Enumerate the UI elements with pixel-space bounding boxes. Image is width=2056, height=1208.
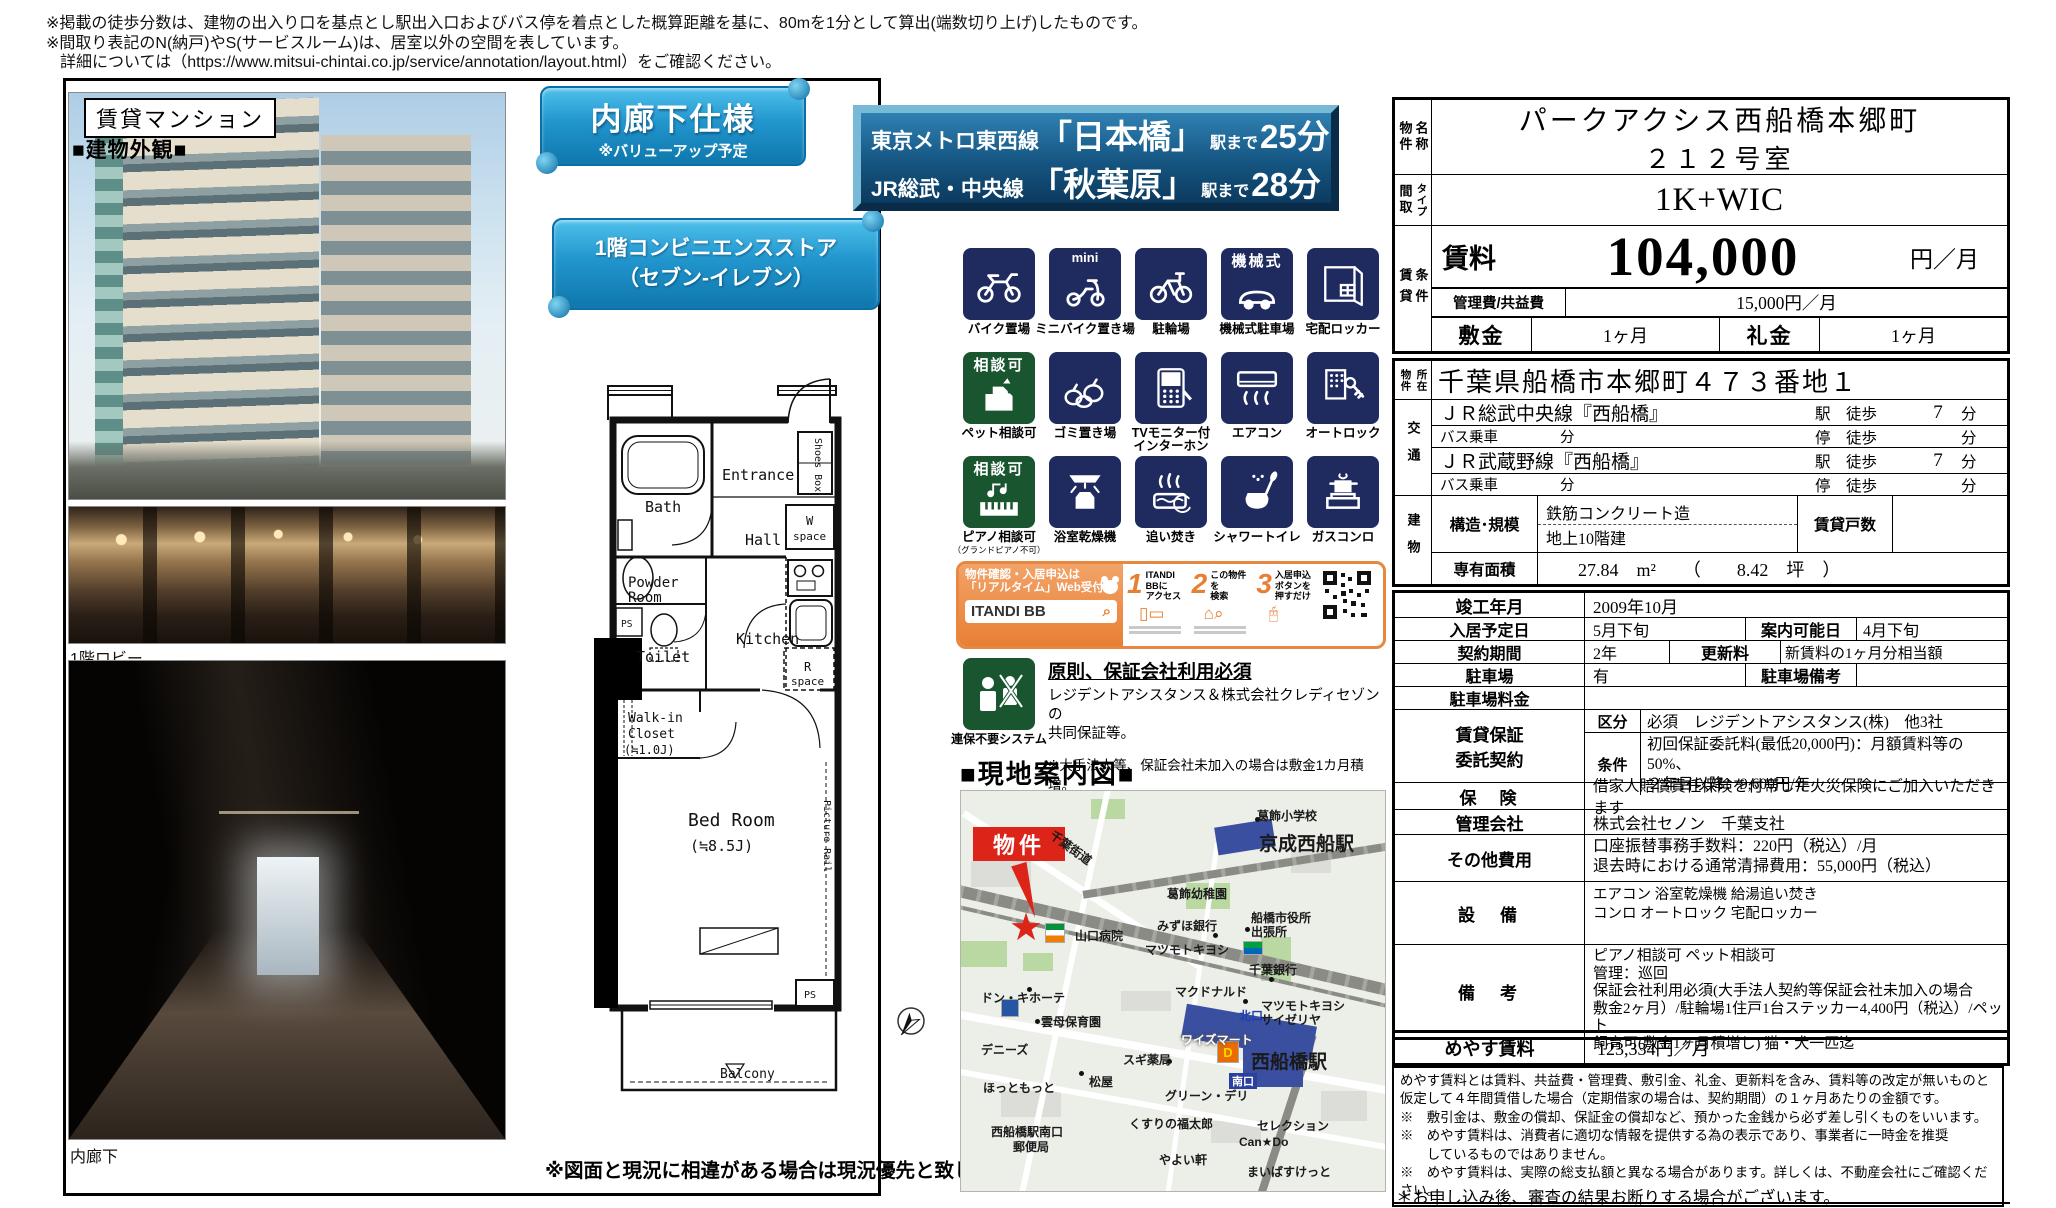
other-fees-row: その他費用 口座振替事務手数料：220円（税込）/月 退去時における通常清掃費用… — [1395, 834, 2007, 881]
amenity-pet-ok: 相談可 ペット相談可 — [956, 352, 1042, 456]
guarantee-contract-row: 賃貸保証 委託契約 区分 必須 レジデントアシスタンス(株) 他3社 条件 初回… — [1395, 709, 2007, 782]
structure-line: 鉄筋コンクリート造 — [1538, 500, 1797, 525]
guarantor-body: レジデントアシスタンス＆株式会社クレディセゾンの — [1048, 687, 1386, 725]
management-company-row: 管理会社 株式会社セノン 千葉支社 — [1395, 809, 2007, 834]
map-label: サイゼリヤ — [1261, 1011, 1321, 1028]
amenity-label: ピアノ相談可 — [962, 531, 1036, 544]
parking-note-value — [1857, 664, 2007, 686]
map-label: セレクション — [1257, 1117, 1329, 1134]
guide-rent-label: めやす賃料 — [1395, 1033, 1585, 1063]
amenity-aircon: エアコン — [1214, 352, 1300, 456]
qr-code — [1321, 564, 1383, 646]
transit-line: ＪＲ総武中央線『西船橋』 — [1432, 399, 1815, 426]
feature-ribbon-convenience-store: 1階コンビニエンスストア （セブン-イレブン） — [552, 218, 880, 310]
seven-eleven-icon — [1045, 923, 1065, 943]
bus-label: バス乗車 — [1432, 426, 1560, 447]
rent-conditions-row: 賃貸 条件 賃料 104,000 円／月 管理費/共益費 15,000円／月 敷… — [1395, 225, 2007, 351]
parking-row: 駐車場 有 駐車場備考 — [1395, 663, 2007, 686]
room-label-powder-room: Room — [628, 590, 662, 606]
itandi-header-panel: 物件確認・入居申込は 「リアルタイム」Web受付 ITANDI BB ⌕ — [959, 564, 1123, 646]
fine-print — [1194, 631, 1246, 634]
transit-line: ＪＲ武蔵野線『西船橋』 — [1432, 447, 1815, 474]
access-row: JR総武・中央線 「秋葉原」 駅まで 28分 — [871, 158, 1321, 206]
map-park — [1023, 953, 1053, 971]
shower-toilet-icon — [1221, 456, 1293, 528]
map-label: デニーズ — [981, 1041, 1028, 1058]
room-label-w-space: space — [793, 530, 826, 543]
property-type-badge: 賃貸マンション — [84, 98, 276, 138]
other-fees-label: その他費用 — [1395, 835, 1585, 881]
photo-lobby — [68, 506, 506, 644]
station-name: 「日本橋」 — [1039, 110, 1204, 158]
guarantee-kubun-row: 区分 必須 レジデントアシスタンス(株) 他3社 — [1585, 710, 2007, 732]
disclaimer-line: ※掲載の徒歩分数は、建物の出入り口を基点とし駅出入口およびバス停を着点とした概算… — [46, 14, 1148, 34]
completion-label: 竣工年月 — [1395, 593, 1585, 617]
autolock-icon — [1307, 352, 1379, 424]
row-header-text: 名称 — [1414, 121, 1429, 153]
area-label: 専有面積 — [1432, 553, 1538, 584]
motorbike-icon — [963, 248, 1035, 320]
ribbon-line: 1階コンビニエンスストア — [554, 234, 878, 264]
equipment-row: 設 備 エアコン 浴室乾燥機 給湯追い焚き コンロ オートロック 宅配ロッカー — [1395, 881, 2007, 944]
parking-note-label: 駐車場備考 — [1745, 664, 1857, 686]
map-block — [1121, 991, 1171, 1011]
insurance-row: 保 険 借家人賠償責任保険を付帯した火災保険にご加入いただきます — [1395, 782, 2007, 809]
row-header-text: 建物 — [1406, 513, 1421, 567]
property-name-row: 物件 名称 パークアクシス西船橋本郷町 ２１２号室 — [1395, 100, 2007, 174]
itandi-web-application-banner: 物件確認・入居申込は 「リアルタイム」Web受付 ITANDI BB ⌕ 1 I… — [956, 561, 1386, 649]
station-name: 「秋葉原」 — [1030, 158, 1195, 206]
completion-value: 2009年10月 — [1585, 593, 2007, 617]
guide-note-line: ※ めやす賃料は、消費者に適切な情報を提供する為の表示であり、事業者に一時金を推… — [1400, 1127, 1996, 1145]
room-label-shoes-box: Shoes Box — [812, 438, 823, 492]
guarantee-label: 賃貸保証 委託契約 — [1395, 710, 1585, 782]
map-label: みずほ銀行 — [1157, 917, 1217, 934]
row-header-text: 所在 — [1414, 369, 1429, 392]
amenity-piano-ok: 相談可 ピアノ相談可 （グランドピアノ不可） — [956, 456, 1042, 560]
stop-walk-label: 停 徒歩 — [1815, 426, 1915, 448]
amenity-tv-intercom: TVモニター付インターホン — [1128, 352, 1214, 456]
transit-unit: 分 — [1961, 426, 2007, 448]
deposit-label: 敷金 — [1432, 318, 1532, 351]
map-label: ほっともっと — [983, 1079, 1055, 1096]
transit-unit: 分 — [1961, 402, 2007, 424]
map-label: Can★Do — [1239, 1135, 1288, 1149]
room-label-ps: PS — [621, 619, 633, 630]
room-label-walkin2: Closet — [628, 727, 675, 742]
property-star-icon: ★ — [1009, 909, 1043, 947]
bath-dryer-icon — [1049, 456, 1121, 528]
floor-plan: Entrance Shoes Box Bath Hall W space Pow… — [540, 376, 890, 1176]
amenity-shower-toilet: シャワートイレ — [1214, 456, 1300, 560]
equipment-line: エアコン 浴室乾燥機 給湯追い焚き — [1593, 886, 2007, 905]
remarks-line: 管理：巡回 — [1593, 966, 2007, 984]
fine-print — [1129, 626, 1181, 629]
rent-row: 賃料 104,000 円／月 — [1432, 226, 2007, 287]
amenity-label: 浴室乾燥機 — [1054, 531, 1117, 544]
room-label-walkin1: Walk-in — [628, 711, 683, 726]
amenity-mechanical-parking: 機械式 機械式駐車場 — [1214, 248, 1300, 352]
amenity-label: バイク置場 — [968, 323, 1030, 336]
insurance-value: 借家人賠償責任保険を付帯した火災保険にご加入いただきます — [1585, 783, 2007, 809]
photo-corridor — [68, 660, 506, 1140]
rail-line-name: 東京メトロ東西線 — [871, 125, 1039, 155]
row-header: 建物 — [1395, 496, 1432, 584]
guide-note-line: しているものではありません。 — [1400, 1146, 1996, 1164]
familymart-icon — [1243, 941, 1263, 955]
amenity-autolock: オートロック — [1300, 352, 1386, 456]
table-bottom-rule — [1392, 1202, 2010, 1204]
completion-row: 竣工年月 2009年10月 — [1395, 593, 2007, 617]
guide-note-line: 仮定して４年間賃借した場合（定期借家の場合は、契約期間）の１ヶ月あたりの金額です… — [1400, 1090, 1996, 1108]
structure-line: 地上10階建 — [1538, 525, 1797, 549]
garbage-area-icon — [1049, 352, 1121, 424]
row-header: 賃貸 条件 — [1395, 226, 1432, 351]
corridor-caption: 内廊下 — [70, 1143, 118, 1167]
transit-bus-row: バス乗車 分 停 徒歩 分 — [1432, 425, 2007, 447]
remarks-label: 備 考 — [1395, 945, 1585, 1037]
equipment-line: コンロ オートロック 宅配ロッカー — [1593, 905, 2007, 924]
access-row: 東京メトロ東西線 「日本橋」 駅まで 25分 — [871, 110, 1321, 158]
bus-minutes-unit: 分 — [1560, 426, 1815, 447]
remarks-line: ピアノ相談可 ペット相談可 — [1593, 948, 2007, 966]
map-label: 西船橋駅 — [1251, 1047, 1327, 1074]
building-rows: 建物 構造･規模 鉄筋コンクリート造 地上10階建 賃貸戸数 専有面積 27.8… — [1395, 495, 2007, 584]
guide-rent-value: 123,334円／月 — [1585, 1033, 2007, 1063]
amenity-label: オートロック — [1305, 427, 1380, 440]
transit-unit: 分 — [1961, 474, 2007, 496]
map-label: くすりの福太郎 — [1129, 1115, 1213, 1132]
map-label: まいばすけっと — [1247, 1163, 1331, 1180]
contract-row: 契約期間 2年 更新料 新賃料の1ヶ月分相当額 — [1395, 640, 2007, 663]
station-access-banner: 東京メトロ東西線 「日本橋」 駅まで 25分 JR総武・中央線 「秋葉原」 駅ま… — [853, 105, 1339, 211]
management-company-label: 管理会社 — [1395, 810, 1585, 834]
contract-value: 2年 — [1585, 641, 1669, 663]
map-label: 葛飾幼稚園 — [1167, 885, 1227, 902]
viewing-label: 案内可能日 — [1745, 618, 1857, 640]
guide-rent-row: めやす賃料 123,334円／月 — [1392, 1030, 2010, 1066]
remarks-row: 備 考 ピアノ相談可 ペット相談可 管理：巡回 保証会社利用必須(大手法人契約等… — [1395, 944, 2007, 1037]
transit-walk-label: 駅 徒歩 — [1815, 402, 1915, 424]
guide-note-line: めやす賃料とは賃料、共益費・管理費、敷引金、礼金、更新料を含み、賃料等の改定が無… — [1400, 1072, 1996, 1090]
row-header-text: 交通 — [1406, 421, 1421, 475]
map-dot — [1245, 927, 1250, 932]
map-label: ワイズマート — [1181, 1031, 1253, 1048]
amenity-sublabel: （グランドピアノ不可） — [953, 544, 1046, 556]
row-header-text: タイプ — [1414, 183, 1429, 218]
row-header: 物件 名称 — [1395, 100, 1432, 174]
reheating-bath-icon — [1135, 456, 1207, 528]
piano-ok-icon: 相談可 — [963, 456, 1035, 528]
equipment-label: 設 備 — [1395, 882, 1585, 944]
compass-icon — [890, 1000, 932, 1042]
room-label-r-space: space — [791, 675, 824, 688]
movein-label: 入居予定日 — [1395, 618, 1585, 640]
other-fees-line: 口座振替事務手数料：220円（税込）/月 — [1593, 837, 2007, 857]
guarantor-body: 共同保証等。 — [1048, 725, 1386, 744]
rail-line-name: JR総武・中央線 — [871, 173, 1030, 203]
aircon-icon — [1221, 352, 1293, 424]
kubun-value: 必須 レジデントアシスタンス(株) 他3社 — [1641, 710, 2007, 732]
itandi-headline: 物件確認・入居申込は — [965, 569, 1117, 582]
amenity-label: ミニバイク置き場 — [1035, 323, 1135, 336]
room-label-picture-rail: Picture Rail — [821, 800, 832, 872]
mechanical-parking-icon: 機械式 — [1221, 248, 1293, 320]
amenity-delivery-locker: 宅配ロッカー — [1300, 248, 1386, 352]
access-minutes: 25分 — [1260, 110, 1330, 158]
itandi-logo-text: ITANDI BB — [971, 603, 1046, 620]
amenity-bath-dryer: 浴室乾燥機 — [1042, 456, 1128, 560]
remarks-line: 保証会社利用必須(大手法人契約等保証会社未加入の場合 — [1593, 983, 2007, 1001]
minibike-icon: mini — [1049, 248, 1121, 320]
area-value: 27.84 m² （ 8.42 坪 ） — [1538, 553, 2007, 584]
amenity-motorbike: バイク置場 — [956, 248, 1042, 352]
row-header-text: 間取 — [1398, 184, 1413, 216]
movein-row: 入居予定日 5月下旬 案内可能日 4月下旬 — [1395, 617, 2007, 640]
structure-label: 構造･規模 — [1432, 496, 1538, 552]
amenity-gas-stove: ガスコンロ — [1300, 456, 1386, 560]
spec-section-details: 竣工年月 2009年10月 入居予定日 5月下旬 案内可能日 4月下旬 契約期間… — [1392, 590, 2010, 1040]
layout-type: 1K+WIC — [1432, 175, 2007, 225]
parking-value: 有 — [1585, 664, 1745, 686]
room-label-hall: Hall — [745, 531, 781, 549]
step-number: 3 — [1256, 570, 1272, 598]
map-dot — [1079, 1071, 1084, 1076]
viewing-value: 4月下旬 — [1857, 618, 2007, 640]
structure-value: 鉄筋コンクリート造 地上10階建 — [1538, 496, 1797, 552]
room-label-walkin-size: (≒1.0J) — [624, 743, 675, 757]
bear-icon — [1102, 580, 1118, 594]
amenity-label: シャワートイレ — [1213, 531, 1301, 544]
row-header-text: 物件 — [1398, 369, 1413, 392]
room-label-toilet: Toilet — [636, 648, 690, 666]
itandi-steps: 1 ITANDI BBに アクセス ▯▭ 2 この物件を 検索 ⌂⌕ 3 入居申… — [1123, 564, 1321, 646]
room-label-w: W — [806, 514, 814, 528]
map-label: グリーン・デリ — [1165, 1087, 1248, 1104]
step-number: 1 — [1127, 570, 1143, 598]
management-company-value: 株式会社セノン 千葉支社 — [1585, 810, 2007, 834]
renewal-label: 更新料 — [1669, 641, 1781, 663]
itandi-step-3: 3 入居申込ボタンを 押すだけ 🖰 — [1254, 568, 1319, 642]
row-header-text: 賃貸 — [1398, 268, 1413, 310]
itandi-step-2: 2 この物件を 検索 ⌂⌕ — [1190, 568, 1255, 642]
tv-intercom-icon — [1135, 352, 1207, 424]
property-room-number: ２１２号室 — [1644, 139, 1794, 176]
house-search-icon: ⌂⌕ — [1204, 604, 1253, 624]
amenity-label: ゴミ置き場 — [1054, 427, 1117, 440]
keymoney-label: 礼金 — [1720, 318, 1820, 351]
parking-label: 駐車場 — [1395, 664, 1585, 686]
plan-priority-note: ※図面と現況に相違がある場合は現況優先と致します。 — [545, 1154, 1030, 1183]
guarantee-label-line: 賃貸保証 — [1456, 721, 1524, 746]
guarantor-title: 原則、保証会社利用必須 — [1048, 658, 1386, 684]
map-label: ドン・キホーテ — [981, 989, 1065, 1006]
management-fee-value: 15,000円／月 — [1566, 289, 2007, 316]
itandi-logo: ITANDI BB ⌕ — [965, 600, 1117, 623]
foreground-buildings — [69, 441, 505, 499]
mini-badge: mini — [1049, 250, 1121, 265]
row-header-text: 物件 — [1398, 121, 1413, 153]
amenity-label: 駐輪場 — [1152, 323, 1190, 336]
map-label: マクドナルド — [1175, 983, 1247, 1000]
disclaimer-notes: ※掲載の徒歩分数は、建物の出入り口を基点とし駅出入口およびバス停を着点とした概算… — [46, 14, 1148, 73]
rent-label: 賃料 — [1432, 237, 1496, 276]
rent-amount: 104,000 — [1496, 225, 1910, 288]
location-map: D 物件 ★ 葛飾小学校 京成西船駅 千葉街道 葛飾幼稚園 みずほ銀行 船橋市役… — [960, 790, 1386, 1192]
access-minutes: 28分 — [1251, 158, 1321, 206]
map-label: 京成西船駅 — [1259, 829, 1354, 856]
map-heading: ■現地案内図■ — [960, 754, 1135, 791]
structure-row: 構造･規模 鉄筋コンクリート造 地上10階建 賃貸戸数 — [1432, 496, 2007, 552]
map-label: スギ薬局 — [1123, 1051, 1171, 1068]
screening-note: ＊お申し込み後、審査の結果お断りする場合がございます。 — [1396, 1184, 1840, 1208]
map-label: 雲母保育園 — [1041, 1013, 1101, 1030]
row-header-text: 条件 — [1414, 268, 1429, 310]
transit-row: ＪＲ総武中央線『西船橋』 駅 徒歩 7 分 — [1432, 400, 2007, 425]
insurance-label: 保 険 — [1395, 783, 1585, 809]
fine-print — [1194, 626, 1246, 629]
management-fee-row: 管理費/共益費 15,000円／月 — [1432, 287, 2007, 316]
gas-stove-icon — [1307, 456, 1379, 528]
phone-laptop-icon: ▯▭ — [1139, 604, 1188, 624]
management-fee-label: 管理費/共益費 — [1432, 289, 1566, 316]
room-label-entrance: Entrance — [722, 466, 794, 484]
disclaimer-line: 詳細については（https://www.mitsui-chintai.co.jp… — [46, 53, 1148, 73]
no-guarantor-icon — [963, 658, 1035, 730]
amenity-label: ペット相談可 — [961, 427, 1036, 440]
amenity-label: ガスコンロ — [1312, 531, 1375, 544]
amenity-label: エアコン — [1232, 427, 1282, 440]
row-header: 物件 所在 — [1395, 361, 1432, 399]
map-label: やよい軒 — [1159, 1151, 1207, 1168]
itandi-headline: 「リアルタイム」Web受付 — [965, 582, 1117, 595]
parking-fee-label: 駐車場料金 — [1395, 687, 1585, 709]
room-label-bedroom-size: (≒8.5J) — [690, 837, 753, 855]
address: 千葉県船橋市本郷町４７３番地１ — [1432, 361, 2007, 399]
map-label: 北口 — [1239, 1007, 1263, 1024]
map-label: 郵便局 — [1013, 1138, 1049, 1155]
lobby-columns — [69, 507, 505, 643]
map-label: 松屋 — [1089, 1073, 1113, 1090]
kubun-label: 区分 — [1585, 710, 1641, 732]
transit-unit: 分 — [1961, 450, 2007, 472]
row-header: 間取 タイプ — [1395, 175, 1432, 225]
area-row: 専有面積 27.84 m² （ 8.42 坪 ） — [1432, 552, 2007, 584]
amenity-label: TVモニター付インターホン — [1132, 427, 1210, 453]
consult-badge: 相談可 — [963, 458, 1035, 479]
map-label: 山口病院 — [1075, 927, 1123, 944]
renewal-value: 新賃料の1ヶ月分相当額 — [1781, 641, 2007, 663]
delivery-locker-icon — [1307, 248, 1379, 320]
no-guarantor-label: 連保不要システム — [951, 733, 1047, 746]
mechanical-badge: 機械式 — [1221, 250, 1293, 271]
disclaimer-line: ※間取り表記のN(納戸)やS(サービスルーム)は、居室以外の空間を表しています。 — [46, 34, 1148, 54]
transit-walk-label: 駅 徒歩 — [1815, 450, 1915, 472]
transit-row: ＪＲ武蔵野線『西船橋』 駅 徒歩 7 分 — [1432, 447, 2007, 473]
room-label-kitchen: Kitchen — [736, 630, 799, 648]
transit-minutes: 7 — [1915, 402, 1961, 424]
transit-minutes: 7 — [1915, 450, 1961, 472]
spec-section-top: 物件 名称 パークアクシス西船橋本郷町 ２１２号室 間取 タイプ 1K+WIC … — [1392, 97, 2010, 354]
room-label-r: R — [804, 660, 812, 674]
consult-badge: 相談可 — [963, 354, 1035, 375]
units-label: 賃貸戸数 — [1797, 496, 1893, 552]
step-number: 2 — [1192, 570, 1208, 598]
room-label-powder: Powder — [628, 575, 679, 591]
map-label: 千葉銀行 — [1249, 961, 1297, 978]
contract-label: 契約期間 — [1395, 641, 1585, 663]
amenity-minibike: mini ミニバイク置き場 — [1042, 248, 1128, 352]
deposit-value: 1ヶ月 — [1532, 318, 1720, 351]
amenity-garbage-area: ゴミ置き場 — [1042, 352, 1128, 456]
ribbon-title: 内廊下仕様 — [542, 94, 804, 139]
corridor-light-strip — [219, 811, 359, 814]
pet-ok-icon: 相談可 — [963, 352, 1035, 424]
access-to-label: 駅まで — [1210, 129, 1258, 153]
spec-section-location: 物件 所在 千葉県船橋市本郷町４７３番地１ 交通 ＪＲ総武中央線『西船橋』 駅 … — [1392, 358, 2010, 587]
rent-unit: 円／月 — [1910, 240, 2007, 274]
map-label: 出張所 — [1251, 923, 1287, 940]
fine-print — [1129, 631, 1181, 634]
property-name: パークアクシス西船橋本郷町 — [1519, 99, 1921, 139]
deposit-keymoney-row: 敷金 1ヶ月 礼金 1ヶ月 — [1432, 316, 2007, 351]
corridor-end-door — [257, 857, 319, 975]
parking-fee-row: 駐車場料金 — [1395, 686, 2007, 709]
bus-minutes-unit: 分 — [1560, 474, 1815, 495]
amenity-icon-grid: バイク置場 mini ミニバイク置き場 駐輪場 機械式 機械式駐車場 — [956, 248, 1388, 560]
map-dot — [1035, 1019, 1040, 1024]
bicycle-icon — [1135, 248, 1207, 320]
joken-line: 初回保証委託料(最低20,000円)：月額賃料等の50%、 — [1647, 735, 2007, 775]
stop-walk-label: 停 徒歩 — [1815, 474, 1915, 496]
feature-ribbon-inner-corridor: 内廊下仕様 ※バリューアップ予定 — [540, 86, 806, 166]
layout-row: 間取 タイプ 1K+WIC — [1395, 174, 2007, 225]
address-row: 物件 所在 千葉県船橋市本郷町４７３番地１ — [1395, 361, 2007, 399]
row-header: 交通 — [1395, 400, 1432, 495]
room-label-ps-bottom: PS — [804, 990, 816, 1001]
parking-fee-value — [1585, 687, 2007, 709]
ribbon-line: （セブン-イレブン） — [554, 264, 878, 294]
map-label: 葛飾小学校 — [1257, 807, 1317, 824]
amenity-bicycle: 駐輪場 — [1128, 248, 1214, 352]
transit-rows: 交通 ＪＲ総武中央線『西船橋』 駅 徒歩 7 分 バス乗車 分 停 徒歩 分 Ｊ… — [1395, 399, 2007, 495]
map-label: マツモトキヨシ — [1145, 941, 1229, 958]
room-label-balcony: Balcony — [720, 1067, 775, 1082]
amenity-reheating-bath: 追い焚き — [1128, 456, 1214, 560]
bus-label: バス乗車 — [1432, 474, 1560, 495]
amenity-label: 追い焚き — [1146, 531, 1196, 544]
guide-note-line: ※ 敷引金は、敷金の償却、保証金の償却など、預かった金銭から必ず差し引くものをい… — [1400, 1109, 1996, 1127]
itandi-step-1: 1 ITANDI BBに アクセス ▯▭ — [1125, 568, 1190, 642]
movein-value: 5月下旬 — [1585, 618, 1745, 640]
other-fees-line: 退去時における通常清掃費用：55,000円（税込） — [1593, 857, 2007, 877]
guarantee-label-line: 委託契約 — [1456, 746, 1524, 771]
exterior-heading: ■建物外観■ — [72, 134, 187, 164]
search-icon: ⌕ — [1103, 603, 1111, 620]
amenity-label: 機械式駐車場 — [1219, 323, 1294, 336]
room-label-bedroom: Bed Room — [688, 810, 775, 831]
transit-bus-row: バス乗車 分 停 徒歩 分 — [1432, 473, 2007, 495]
keymoney-value: 1ヶ月 — [1820, 318, 2007, 351]
access-to-label: 駅まで — [1201, 177, 1249, 201]
room-label-bath: Bath — [645, 498, 681, 516]
ribbon-subtitle: ※バリューアップ予定 — [542, 140, 804, 161]
units-value — [1893, 496, 2007, 552]
map-park — [961, 941, 1007, 967]
amenity-label: 宅配ロッカー — [1305, 323, 1380, 336]
mouse-click-icon: 🖰 — [1268, 604, 1317, 624]
